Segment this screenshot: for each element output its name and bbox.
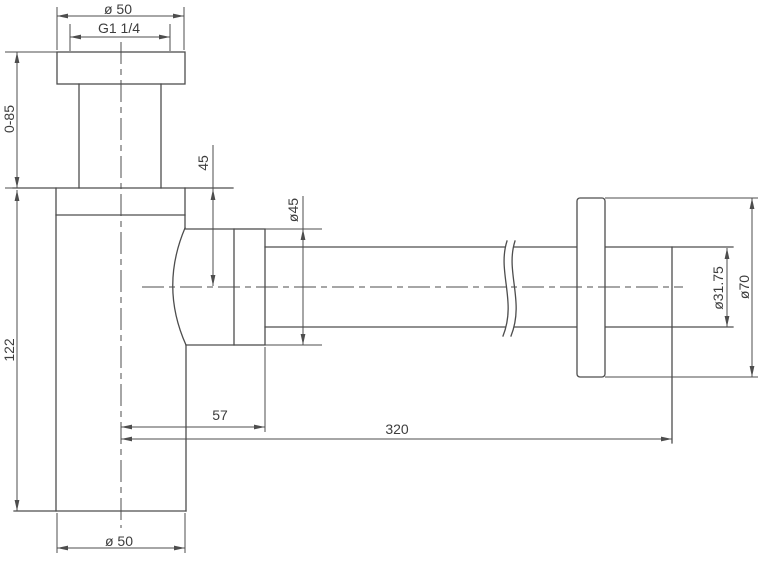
arrowhead-up: [301, 229, 306, 240]
trap-body: [13, 188, 233, 511]
bottle-trap-technical-drawing: ø 50 G1 1/4 0-85 122 45 ø45: [0, 0, 762, 561]
dim-inlet-height-range: 0-85: [1, 52, 57, 188]
thread-size-label: G1 1/4: [98, 20, 140, 36]
arrowhead-left: [57, 14, 68, 19]
arrowhead-right: [254, 425, 265, 430]
arrowhead-up: [15, 52, 20, 63]
arrowhead-left: [121, 425, 132, 430]
inlet-height-range-label: 0-85: [1, 105, 17, 133]
dim-thread-size: G1 1/4: [70, 20, 170, 51]
dim-body-height: 122: [1, 190, 19, 511]
dim-outlet-offset: 57: [121, 347, 265, 432]
arrowhead-right: [159, 35, 170, 40]
dim-pipe-diameter: ø31.75: [710, 248, 729, 327]
arrowhead-right: [661, 437, 672, 442]
arrowhead-up: [15, 190, 20, 201]
arrowhead-right: [173, 14, 184, 19]
drawing-canvas: ø 50 G1 1/4 0-85 122 45 ø45: [0, 0, 762, 561]
nut-diameter-label: ø45: [285, 198, 301, 222]
dim-pipe-length: 320: [121, 421, 672, 441]
bottom-diameter-label: ø 50: [105, 533, 133, 549]
arrowhead-up: [725, 248, 730, 259]
arrowhead-down: [15, 177, 20, 188]
arrowhead-down: [211, 275, 216, 286]
arrowhead-down: [725, 316, 730, 327]
dim-outlet-drop: 45: [195, 145, 215, 286]
dim-nut-diameter: ø45: [265, 196, 322, 345]
arrowhead-left: [121, 437, 132, 442]
outlet-drop-label: 45: [195, 155, 211, 171]
pipe-diameter-label: ø31.75: [710, 266, 726, 310]
arrowhead-down: [15, 500, 20, 511]
arrowhead-up: [750, 198, 755, 209]
arrowhead-left: [70, 35, 81, 40]
dim-flange-diameter: ø70: [736, 198, 754, 377]
arrowhead-down: [301, 334, 306, 345]
arrowhead-left: [57, 546, 68, 551]
flange-diameter-label: ø70: [736, 275, 752, 299]
body-height-label: 122: [1, 338, 17, 362]
outlet-pipe: [265, 241, 733, 443]
arrowhead-down: [750, 366, 755, 377]
outlet-offset-label: 57: [212, 407, 228, 423]
arrowhead-up: [211, 189, 216, 200]
top-diameter-label: ø 50: [104, 1, 132, 17]
pipe-length-label: 320: [385, 421, 409, 437]
arrowhead-right: [174, 546, 185, 551]
